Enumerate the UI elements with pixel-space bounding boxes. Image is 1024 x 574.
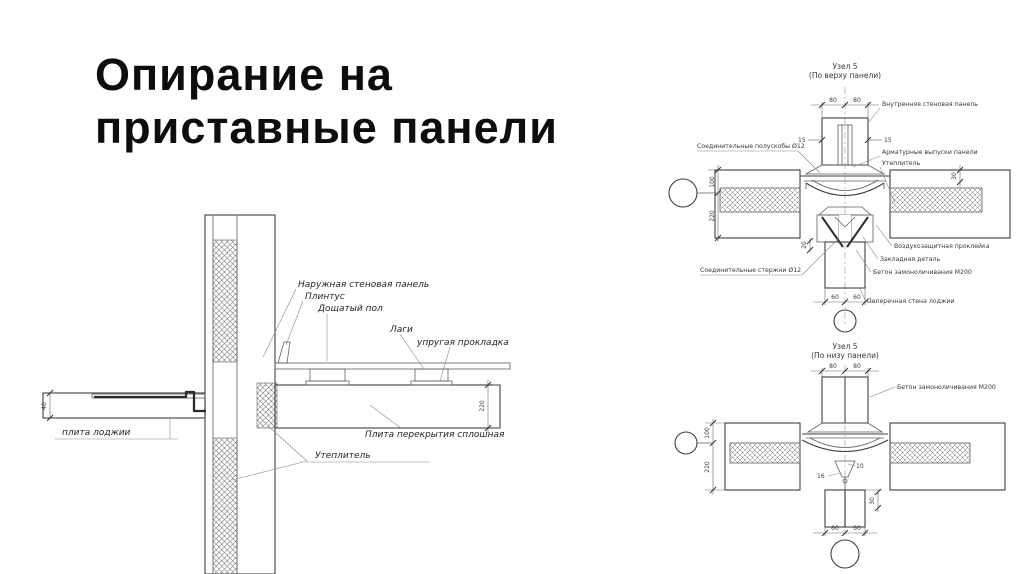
slab-right — [890, 170, 1010, 238]
dim-60a-b: 60 — [831, 525, 839, 532]
label-plank-floor: Дощатый пол — [317, 304, 383, 314]
label-inner-wall-panel: Внутренняя стеновая панель — [882, 101, 978, 108]
joist-1 — [306, 369, 349, 385]
dim-60b: 60 — [853, 294, 861, 301]
left-section-drawing: 220 40 Наружная стеновая панель Плинтус … — [10, 195, 520, 574]
dim-16: 16 — [817, 473, 825, 480]
dim-80a-b: 80 — [829, 363, 837, 370]
panel-with-grout — [822, 377, 868, 423]
dim-15-right: 15 — [865, 137, 892, 144]
joist-2 — [411, 369, 452, 385]
dim-60a: 60 — [831, 294, 839, 301]
label-rebar-outlets: Арматурные выпуски панели — [882, 149, 978, 156]
slide-canvas: Опирание на приставные панели — [0, 0, 1024, 574]
label-loggia-slab: плита лоджии — [62, 428, 131, 438]
dim-10: 10 — [856, 463, 864, 470]
plinth-shape — [278, 342, 290, 363]
wall-insulation-upper — [213, 240, 237, 362]
label-outer-wall-panel: Наружная стеновая панель — [298, 280, 429, 290]
node5-bottom-drawing: Узел 5 (По низу панели) 80 80 — [650, 335, 1024, 574]
dim-30-b: 30 — [865, 489, 882, 512]
dim-16-leader — [828, 473, 840, 476]
node-top-subtitle: (По верху панели) — [809, 71, 881, 80]
dim-60b-b: 60 — [853, 525, 861, 532]
dim-100-b: 100 — [704, 427, 711, 439]
node5-bottom-svg: Узел 5 (По низу панели) 80 80 — [650, 335, 1024, 574]
dim-slab-thickness: 220 — [479, 380, 500, 433]
label-embedded-part: Закладная деталь — [880, 256, 940, 263]
label-solid-floor-slab: Плита перекрытия сплошная — [365, 430, 505, 440]
flashing-profile — [94, 392, 206, 411]
node-bottom-subtitle: (По низу панели) — [811, 351, 879, 360]
node-top-title: Узел 5 — [832, 62, 857, 71]
wall-insulation-lower — [213, 438, 237, 574]
dim-30-right: 30 — [951, 165, 963, 187]
dim-20: 20 — [801, 238, 813, 253]
node5-top-svg: Узел 5 (По верху панели) 80 80 15 1 — [650, 55, 1024, 335]
dim-220-b: 220 — [704, 461, 711, 473]
dim-80a: 80 — [829, 97, 837, 104]
floor-slab — [275, 385, 500, 428]
dim-80b-b: 80 — [853, 363, 861, 370]
dim-20-label: 20 — [801, 241, 808, 249]
label-elastic-gasket: упругая прокладка — [416, 338, 509, 348]
dim-80b: 80 — [853, 97, 861, 104]
label-connecting-rods: Соединительные стержни Ø12 — [700, 266, 801, 274]
slide-title-line1: Опирание на — [95, 48, 715, 101]
slide-title-line2: приставные панели — [95, 101, 715, 154]
left-section-svg: 220 40 Наружная стеновая панель Плинтус … — [10, 195, 520, 574]
grout-leader — [870, 387, 895, 397]
node-bottom-title: Узел 5 — [832, 342, 857, 351]
dim-220-label: 220 — [479, 400, 486, 412]
dim-30r: 30 — [951, 172, 958, 180]
label-insulation-node: Утеплитель — [882, 160, 921, 167]
label-plinth: Плинтус — [305, 292, 345, 302]
plank-floor — [275, 363, 510, 369]
slab-left-b — [725, 423, 800, 490]
label-half-brackets: Соединительные полускобы Ø12 — [697, 142, 805, 150]
slab-left — [715, 170, 800, 238]
grid-bubble-bottom-b — [831, 540, 859, 568]
dim-100: 100 — [709, 176, 716, 188]
dim-15r: 15 — [884, 137, 892, 144]
label-grout-concrete: Бетон замоноличивания М200 — [873, 269, 972, 276]
stem-wall-b — [825, 490, 865, 527]
label-joists: Лаги — [389, 325, 413, 335]
dim-30-label: 30 — [869, 497, 876, 505]
dim-220: 220 — [709, 210, 716, 222]
label-cross-wall: Поперечная стена лоджии — [867, 298, 954, 305]
label-air-tape: Воздухозащитная проклейка — [894, 242, 990, 250]
node5-top-drawing: Узел 5 (По верху панели) 80 80 15 1 — [650, 55, 1024, 335]
joint-insulation — [257, 383, 277, 428]
label-insulation: Утеплитель — [315, 451, 371, 461]
dim-left-100-220-b: 100 220 — [704, 419, 725, 495]
dim-40-label: 40 — [41, 402, 48, 410]
slide-title: Опирание на приставные панели — [95, 48, 715, 154]
label-grout-concrete-b: Бетон замоноличивания М200 — [897, 384, 996, 391]
embedded-parts — [817, 215, 873, 242]
slab-right-b — [890, 423, 1005, 490]
